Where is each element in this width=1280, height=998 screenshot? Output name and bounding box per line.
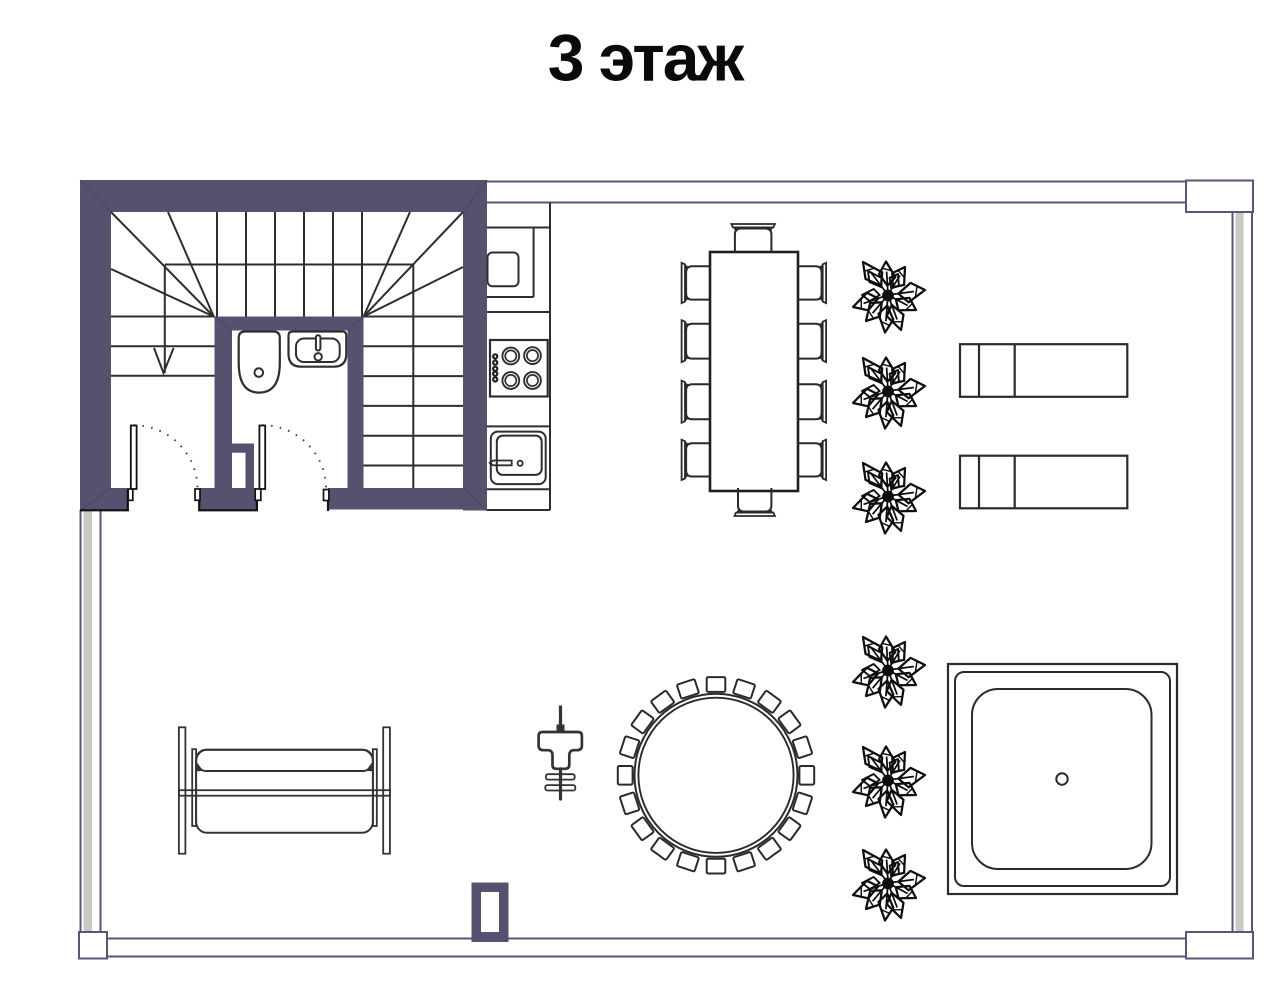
svg-text:3 этаж: 3 этаж bbox=[548, 21, 746, 95]
